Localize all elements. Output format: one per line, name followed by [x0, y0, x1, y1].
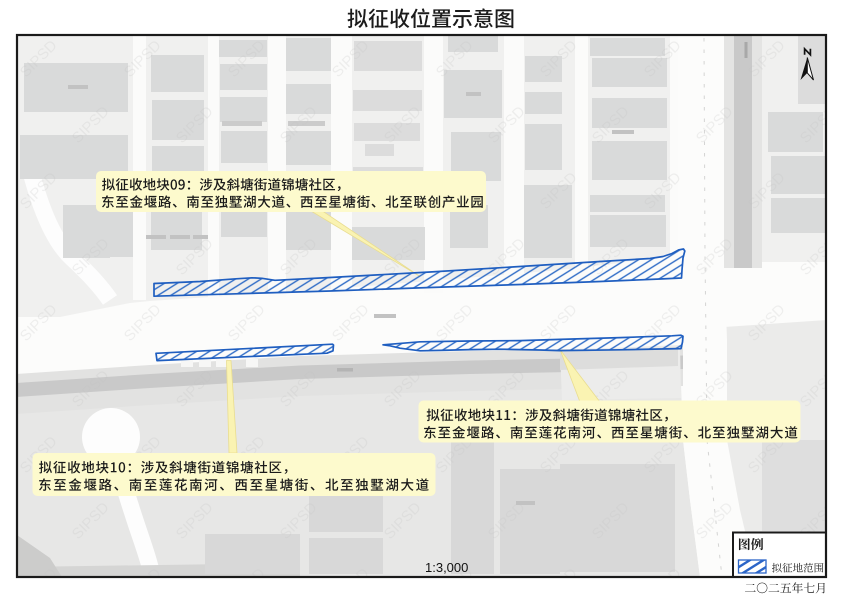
svg-text:1:3,000: 1:3,000	[425, 560, 468, 575]
